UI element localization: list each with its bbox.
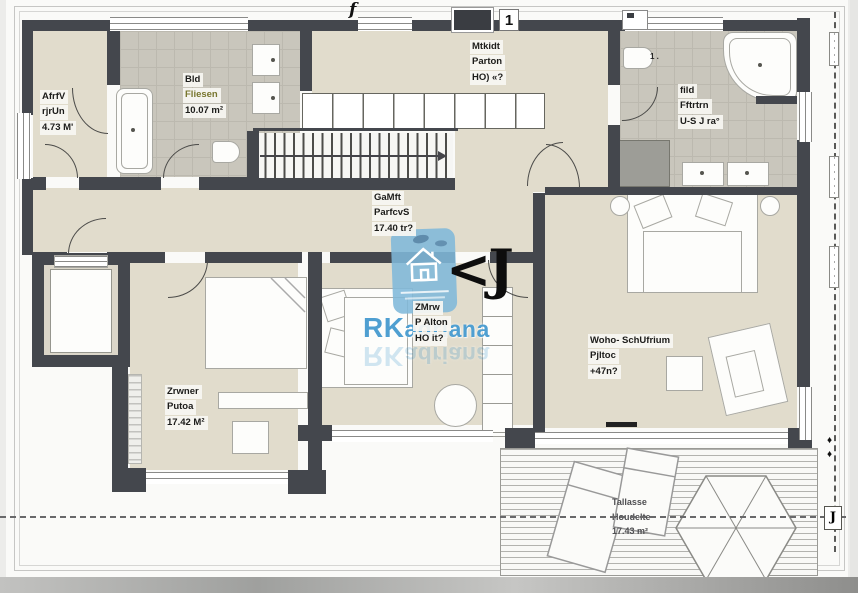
- washbasin: [252, 44, 280, 76]
- wall-segment: [112, 365, 128, 472]
- faucet: [271, 58, 275, 62]
- room-label-line: HO it?: [413, 332, 447, 346]
- floor-plan: 1 . AfrfV: [0, 0, 858, 593]
- terrace-furniture: [500, 446, 820, 577]
- round-table: [434, 384, 477, 427]
- stair-direction-line: [260, 155, 438, 157]
- room-label-room-mid: ZMrw P Alton HO it?: [413, 301, 451, 347]
- bed-fold-marks: [245, 276, 307, 320]
- wall-segment: [797, 18, 810, 92]
- shower: [618, 140, 670, 187]
- window-shutter-box: [452, 8, 493, 32]
- wall-segment: [253, 178, 455, 190]
- room-label-living: Woho- SchUfrium Pjltoc +47n?: [588, 334, 673, 380]
- wall-segment: [33, 177, 46, 190]
- room-label-line: 4.73 M': [40, 121, 76, 135]
- room-label-line: Putoa: [165, 400, 196, 414]
- dimension-tick-box: [829, 156, 839, 198]
- room-label-bath2: fild Fftrtrn U-S J ra°: [678, 84, 723, 130]
- room-label-line: Woho- SchUfrium: [588, 334, 673, 348]
- bed-blanket: [643, 231, 742, 293]
- faucet: [271, 96, 275, 100]
- watermark-brand-lead: RK: [363, 341, 404, 372]
- bathtub-drain: [131, 128, 135, 132]
- wall-segment: [253, 128, 458, 131]
- room-label-hall: GaMft ParfcvS 17.40 tr?: [372, 191, 416, 237]
- room-label-line: HO) «?: [470, 71, 506, 85]
- room-label-line: ParfcvS: [372, 206, 412, 220]
- wall-segment: [608, 20, 620, 85]
- parasol: [676, 476, 796, 577]
- radiator: [128, 374, 142, 464]
- room-label-line: 17.40 tr?: [372, 222, 416, 236]
- wall-segment: [247, 131, 259, 190]
- wall-segment: [248, 20, 358, 31]
- fixture-mark: 1 .: [650, 52, 659, 61]
- room-label-line: 17.43 m²: [610, 525, 651, 539]
- room-label-line: Bld: [183, 73, 203, 87]
- side-table: [232, 421, 269, 454]
- room-label-line: rjrUn: [40, 105, 68, 119]
- window-label-one: 1: [499, 9, 519, 31]
- dimension-tick-box: [829, 32, 839, 66]
- diamond-marker-icon: ♦: [827, 450, 832, 460]
- nightstand: [760, 196, 780, 216]
- house-icon: [401, 240, 447, 286]
- wall-segment: [107, 31, 120, 85]
- room-label-line: 10.07 m²: [183, 104, 226, 118]
- window-mark: [627, 13, 634, 18]
- room-label-line: Tallasse: [610, 496, 650, 510]
- wall-segment: [608, 125, 620, 187]
- room-label-kitchen: Mtkidt Parton HO) «?: [470, 40, 506, 86]
- window-mark-box: [622, 10, 648, 30]
- scan-edge: [850, 0, 858, 577]
- bathtub-drain: [758, 63, 762, 67]
- wall-segment: [533, 193, 545, 432]
- wall-segment: [205, 252, 302, 263]
- watermark-text-line: [405, 296, 445, 299]
- room-label-line: Pjltoc: [588, 349, 619, 363]
- section-label-j: J: [824, 506, 842, 530]
- elevator-car: [50, 269, 112, 353]
- wall-segment: [22, 20, 110, 31]
- wall-segment: [505, 428, 535, 448]
- dimension-tick-box: [829, 246, 839, 288]
- window: [799, 92, 812, 142]
- shelf: [218, 392, 308, 409]
- window-label-f: f: [349, 0, 356, 20]
- wall-segment: [756, 96, 797, 104]
- room-label-line: Zrwner: [165, 385, 202, 399]
- room-label-line: Fliesen: [183, 88, 221, 102]
- room-label-entry: AfrfV rjrUn 4.73 M': [40, 90, 76, 136]
- watermark-brand-lead: RK: [363, 312, 404, 343]
- wall-segment: [112, 468, 146, 492]
- room-label-line: fild: [678, 84, 697, 98]
- wall-segment: [412, 20, 452, 31]
- floor-kitchen: [312, 31, 608, 93]
- nightstand: [610, 196, 630, 216]
- threshold-mark: [606, 422, 637, 427]
- room-label-line: P Alton: [413, 316, 451, 330]
- room-label-line: GaMft: [372, 191, 404, 205]
- faucet: [700, 171, 704, 175]
- window: [17, 113, 31, 179]
- room-label-line: ZMrw: [413, 301, 443, 315]
- wall-segment: [300, 31, 312, 91]
- revision-mark: <J: [446, 242, 511, 296]
- scan-bottom-bar: [0, 577, 858, 593]
- window: [146, 472, 288, 484]
- terrace-sliding-door: [535, 432, 788, 444]
- wall-segment: [797, 140, 810, 387]
- wall-segment: [545, 187, 797, 195]
- desk-chair: [726, 350, 765, 398]
- room-label-bath1: Bld Fliesen 10.07 m²: [183, 73, 226, 119]
- stair-arrow-head-icon: [438, 151, 447, 161]
- room-label-room-left: Zrwner Putoa 17.42 M²: [165, 385, 208, 431]
- window: [799, 387, 812, 440]
- room-label-line: Mtkidt: [470, 40, 503, 54]
- watermark-text-line: [401, 290, 449, 294]
- room-label-line: AfrfV: [40, 90, 68, 104]
- room-label-line: U-S J ra°: [678, 115, 723, 129]
- wall-segment: [298, 425, 332, 441]
- room-label-line: 17.42 M²: [165, 416, 208, 430]
- wall-segment: [79, 177, 161, 190]
- diamond-marker-icon: ♦: [827, 436, 832, 446]
- wall-segment: [22, 178, 33, 255]
- room-label-line: Fftrtrn: [678, 99, 712, 113]
- cabinet-row: [302, 93, 545, 129]
- window: [332, 430, 493, 442]
- wall-segment: [22, 20, 33, 115]
- washbasin: [252, 82, 280, 114]
- elevator-door: [54, 255, 108, 268]
- toilet: [623, 47, 653, 69]
- window: [110, 17, 248, 31]
- room-label-line: Parton: [470, 55, 505, 69]
- faucet: [745, 171, 749, 175]
- wall-segment: [288, 470, 326, 494]
- section-line-horizontal: [0, 516, 846, 518]
- toilet: [212, 141, 240, 163]
- room-label-line: +47n?: [588, 365, 621, 379]
- window: [358, 17, 412, 31]
